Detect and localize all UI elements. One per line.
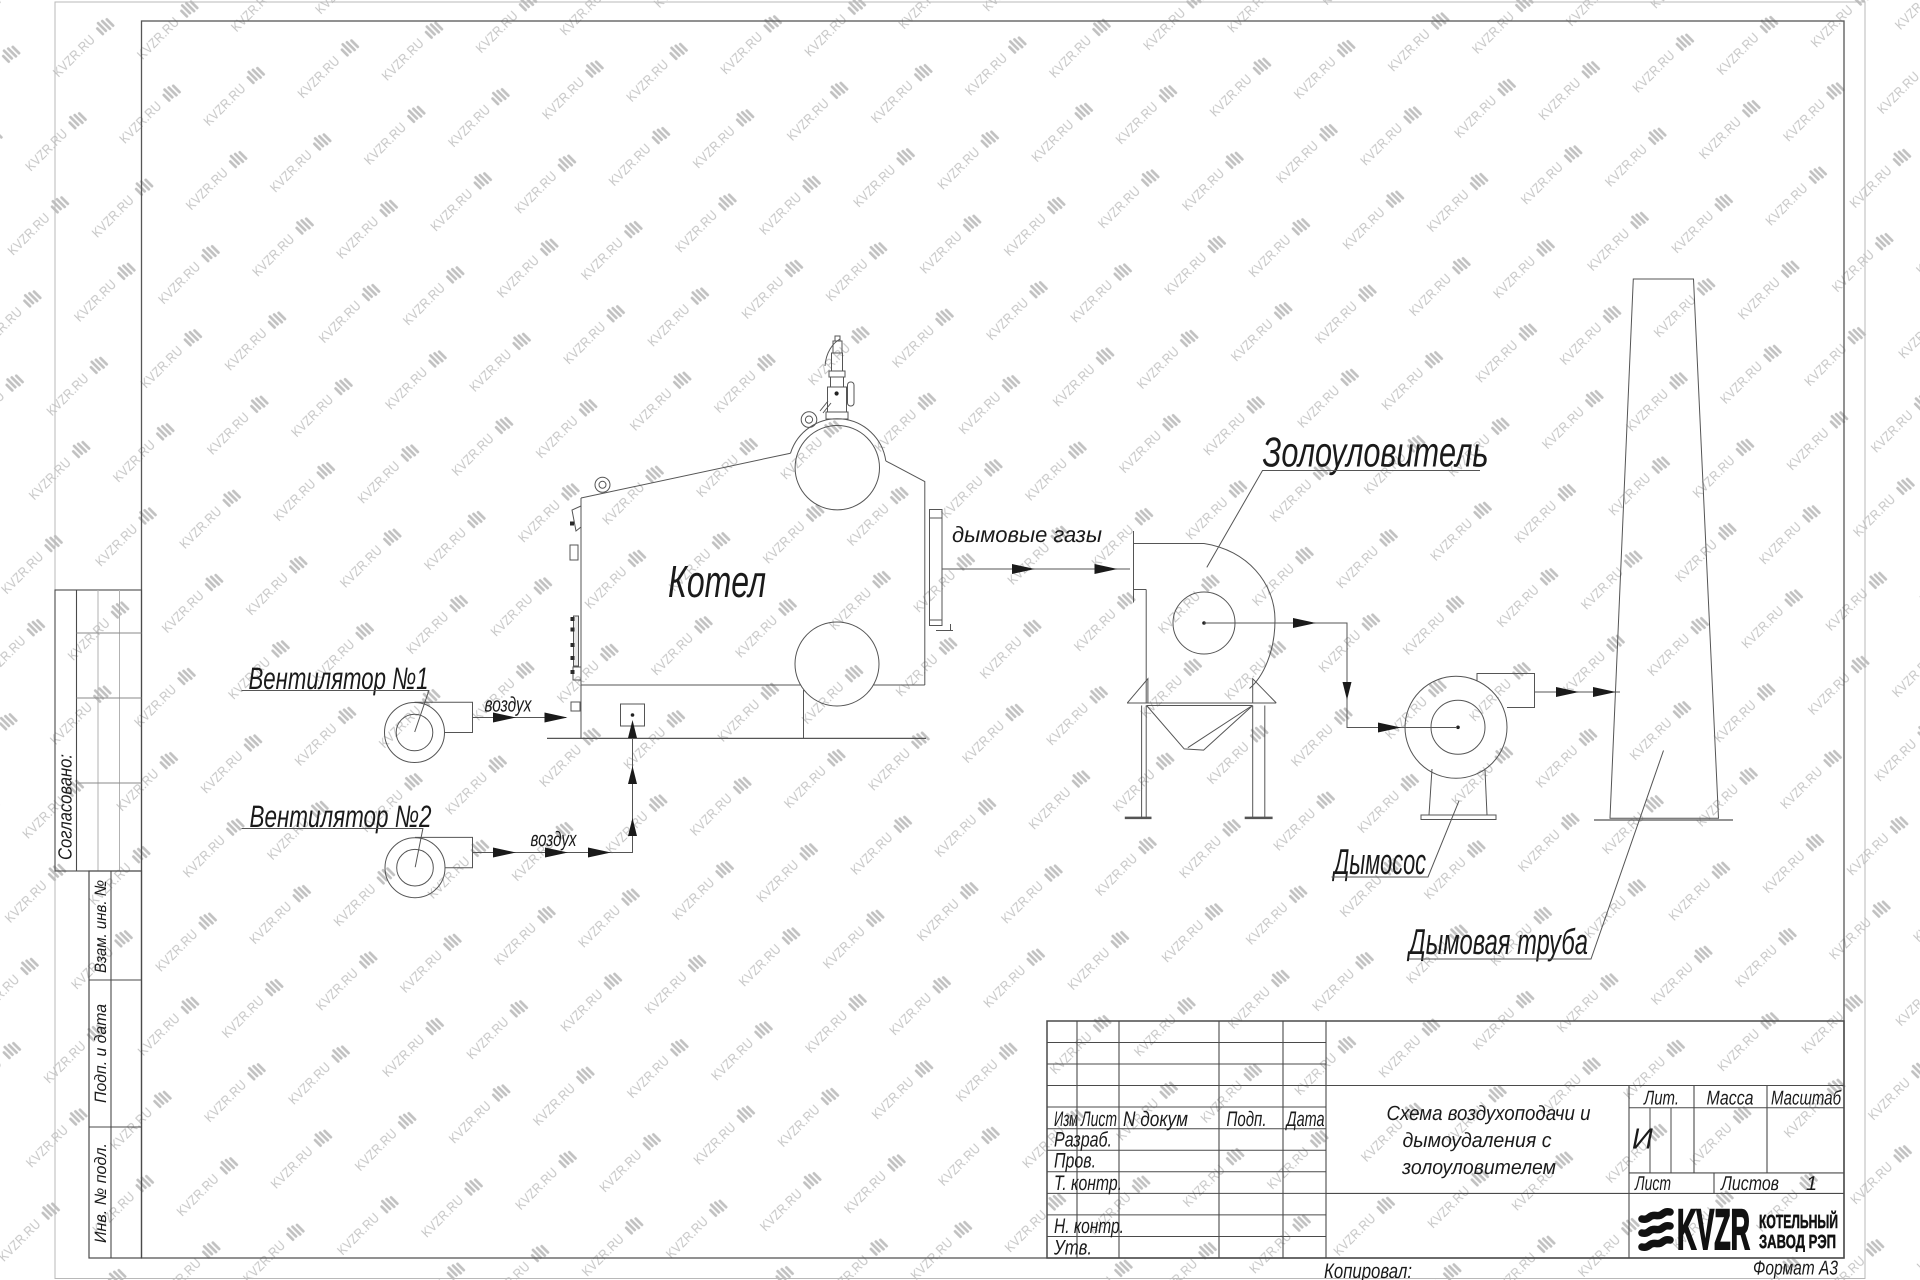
svg-text:Лит.: Лит. xyxy=(1643,1088,1679,1110)
svg-text:Инв. № подл.: Инв. № подл. xyxy=(92,1143,110,1243)
svg-text:Листов: Листов xyxy=(1719,1173,1779,1195)
svg-text:1: 1 xyxy=(1806,1173,1817,1195)
svg-text:Утв.: Утв. xyxy=(1053,1237,1092,1260)
svg-text:Масштаб: Масштаб xyxy=(1771,1088,1842,1110)
svg-text:Дата: Дата xyxy=(1285,1108,1324,1131)
svg-text:Дымовая труба: Дымовая труба xyxy=(1406,921,1588,962)
svg-text:N докум: N докум xyxy=(1123,1108,1188,1131)
svg-text:Копировал:: Копировал: xyxy=(1324,1260,1412,1280)
svg-text:И: И xyxy=(1632,1124,1653,1156)
svg-text:воздух: воздух xyxy=(531,828,578,851)
svg-text:КОТЕЛЬНЫЙ: КОТЕЛЬНЫЙ xyxy=(1759,1210,1838,1233)
svg-text:золоуловителем: золоуловителем xyxy=(1401,1156,1556,1179)
svg-text:Формат А3: Формат А3 xyxy=(1753,1258,1838,1280)
svg-text:Золоуловитель: Золоуловитель xyxy=(1263,429,1489,476)
svg-text:Т. контр.: Т. контр. xyxy=(1054,1172,1122,1195)
svg-text:KVZR: KVZR xyxy=(1677,1198,1750,1262)
svg-text:Согласовано:: Согласовано: xyxy=(56,754,77,860)
svg-text:Подп.: Подп. xyxy=(1227,1108,1267,1131)
svg-text:воздух: воздух xyxy=(485,694,533,717)
svg-text:Разраб.: Разраб. xyxy=(1054,1129,1112,1152)
svg-text:дымовые газы: дымовые газы xyxy=(952,522,1102,547)
svg-text:ЗАВОД РЭП: ЗАВОД РЭП xyxy=(1759,1232,1836,1253)
svg-text:дымоудаления с: дымоудаления с xyxy=(1403,1129,1553,1152)
svg-text:Лист: Лист xyxy=(1634,1173,1671,1195)
svg-text:Пров.: Пров. xyxy=(1054,1150,1096,1173)
svg-text:Котел: Котел xyxy=(668,556,766,607)
svg-text:Взам. инв. №: Взам. инв. № xyxy=(92,880,110,973)
svg-text:Подп. и дата: Подп. и дата xyxy=(92,1004,110,1103)
svg-text:Схема воздухоподачи и: Схема воздухоподачи и xyxy=(1387,1102,1591,1125)
svg-text:Масса: Масса xyxy=(1707,1088,1754,1110)
svg-text:Дымосос: Дымосос xyxy=(1332,841,1426,882)
svg-text:Н. контр.: Н. контр. xyxy=(1054,1215,1124,1238)
